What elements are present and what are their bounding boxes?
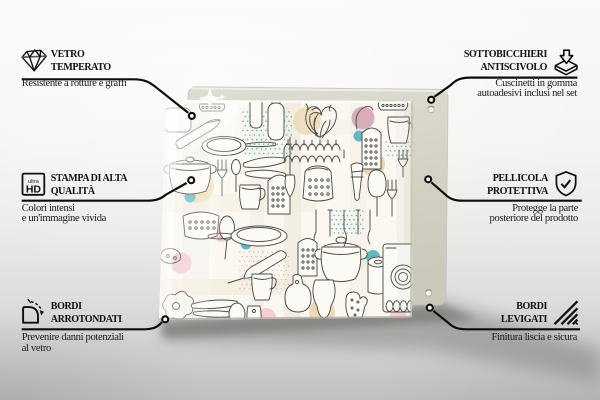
svg-text:HD: HD [26,184,42,196]
